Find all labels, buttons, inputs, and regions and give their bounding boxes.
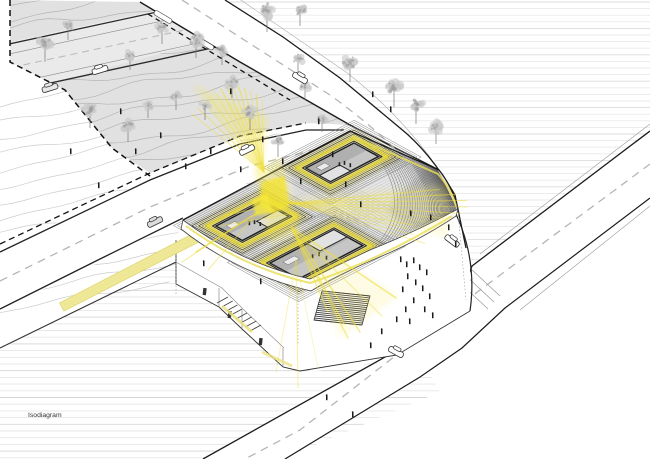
svg-text:Isodiagram: Isodiagram [28,412,62,419]
